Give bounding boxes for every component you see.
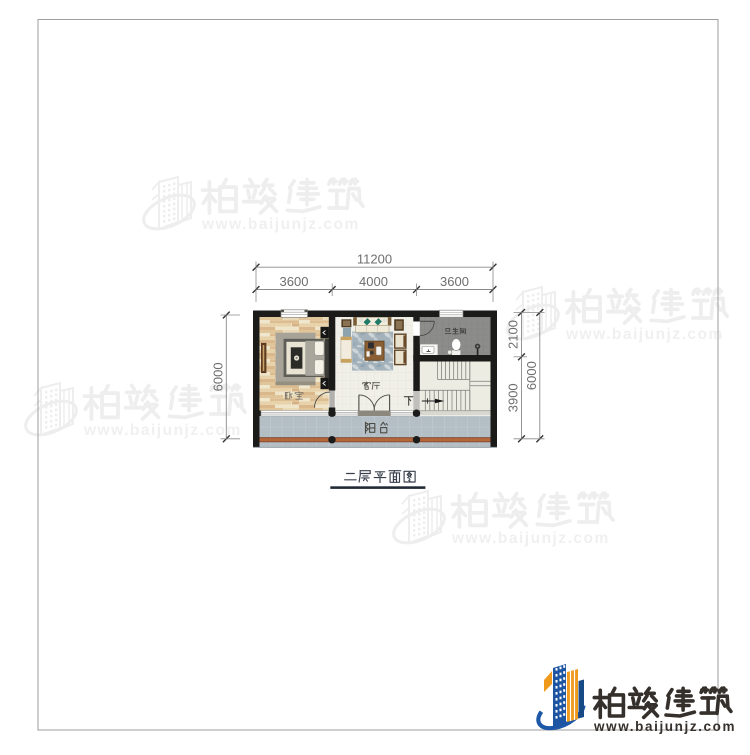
svg-text:2100: 2100: [506, 320, 521, 349]
svg-text:3900: 3900: [506, 383, 521, 412]
svg-text:www.baijunjz.com: www.baijunjz.com: [83, 422, 242, 439]
svg-text:www.baijunjz.com: www.baijunjz.com: [593, 719, 736, 734]
svg-text:11200: 11200: [357, 252, 392, 267]
svg-text:4000: 4000: [359, 274, 388, 289]
svg-text:6000: 6000: [211, 362, 226, 391]
svg-text:3600: 3600: [440, 274, 469, 289]
svg-text:6000: 6000: [524, 361, 539, 390]
svg-text:3600: 3600: [280, 274, 309, 289]
svg-text:www.baijunjz.com: www.baijunjz.com: [565, 326, 724, 343]
svg-text:www.baijunjz.com: www.baijunjz.com: [451, 530, 610, 547]
svg-text:www.baijunjz.com: www.baijunjz.com: [201, 216, 360, 233]
